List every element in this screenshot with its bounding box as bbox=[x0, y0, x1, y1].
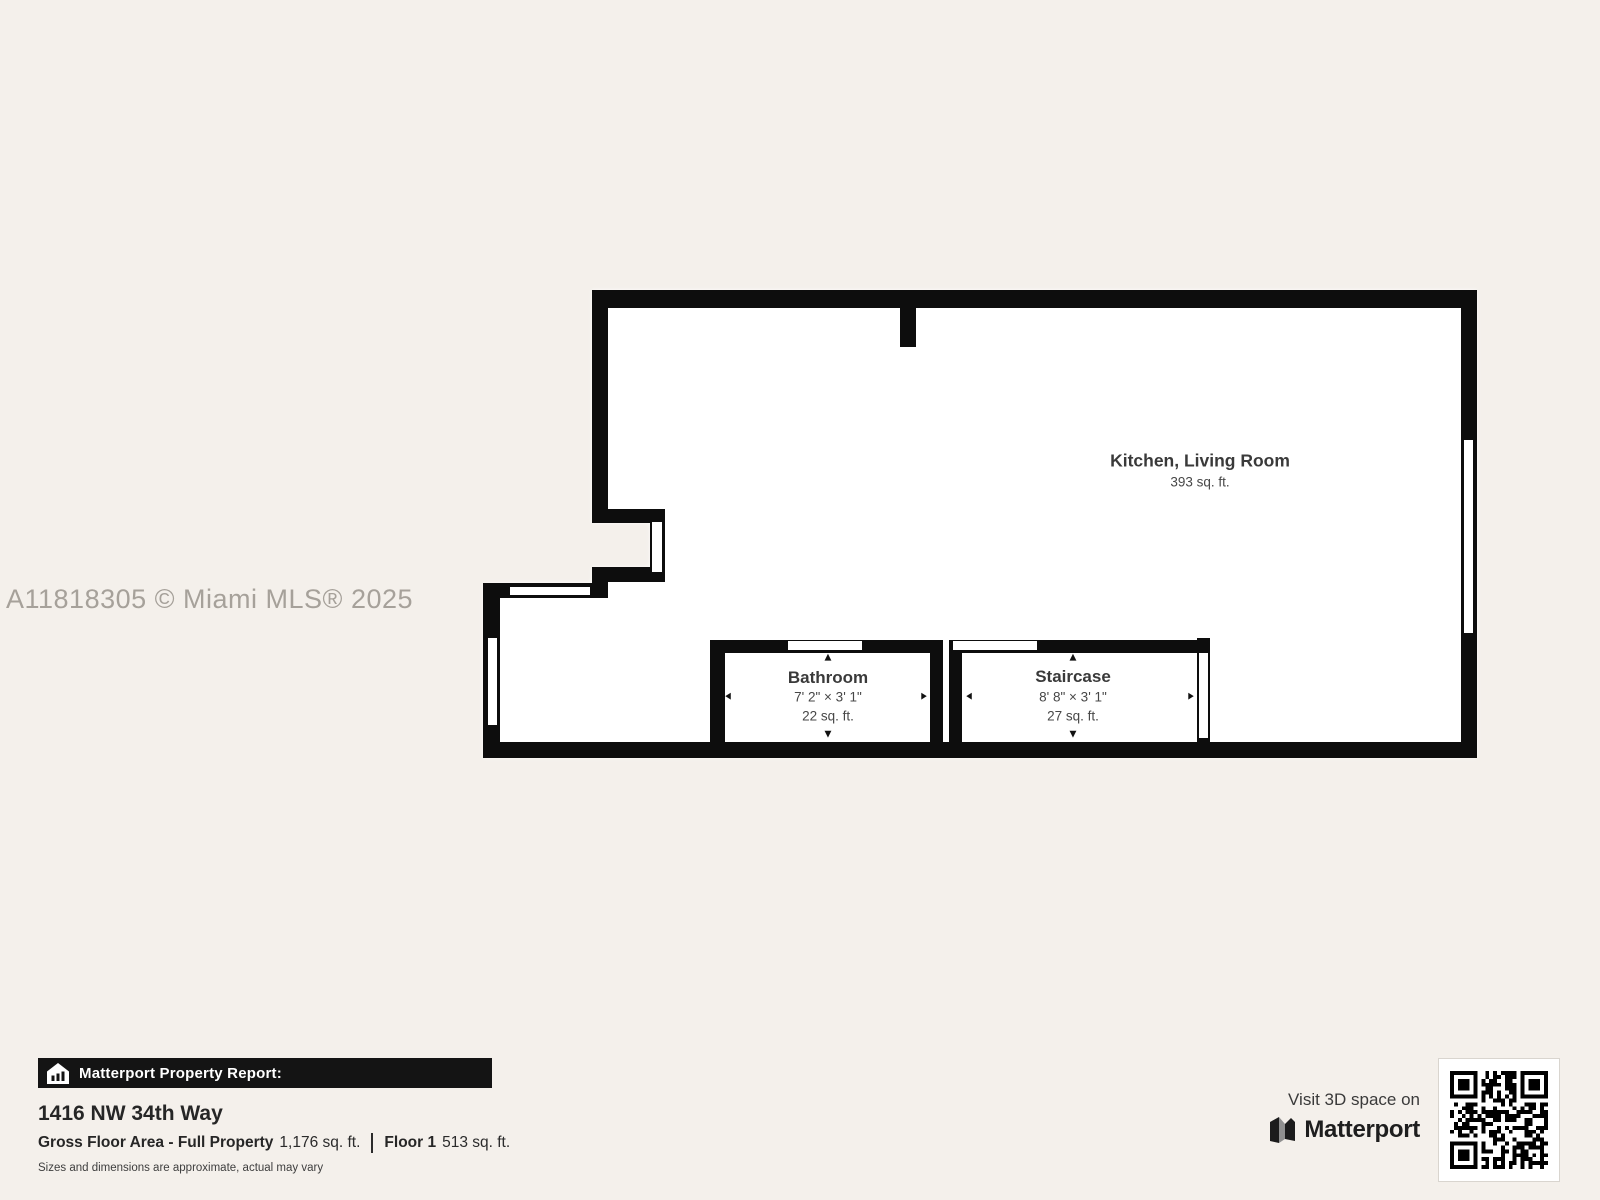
matterport-logo: Matterport bbox=[1268, 1115, 1420, 1145]
mls-watermark: A11818305 © Miami MLS® 2025 bbox=[6, 584, 413, 615]
dimension-arrow-right-icon: ▶ bbox=[921, 693, 927, 702]
visit-3d-space-cta: Visit 3D space on Matterport bbox=[1268, 1090, 1420, 1145]
room-area-kitchen-living-room: 393 sq. ft. bbox=[1170, 475, 1229, 490]
floor-plan: Kitchen, Living Room 393 sq. ft. Bathroo… bbox=[483, 290, 1477, 758]
dimension-arrow-up-icon: ▲ bbox=[825, 654, 832, 663]
disclaimer-text: Sizes and dimensions are approximate, ac… bbox=[38, 1162, 323, 1174]
floor-plan-drawing bbox=[483, 290, 1477, 758]
room-label-bathroom: Bathroom bbox=[788, 668, 868, 688]
floor-interior bbox=[500, 308, 1461, 742]
dimension-arrow-left-icon: ◀ bbox=[966, 693, 972, 702]
floor1-label: Floor 1 bbox=[384, 1134, 436, 1152]
room-area-bathroom: 22 sq. ft. bbox=[802, 709, 854, 724]
room-area-staircase: 27 sq. ft. bbox=[1047, 709, 1099, 724]
matterport-wordmark: Matterport bbox=[1304, 1116, 1420, 1144]
house-icon bbox=[47, 1063, 69, 1084]
room-dimensions-staircase: 8' 8" × 3' 1" bbox=[1039, 690, 1107, 705]
dimension-arrow-up-icon: ▲ bbox=[1070, 654, 1077, 663]
matterport-logo-icon bbox=[1268, 1115, 1296, 1145]
floor1-value: 513 sq. ft. bbox=[442, 1134, 510, 1152]
qr-code-svg bbox=[1450, 1071, 1548, 1169]
floor-area-summary: Gross Floor Area - Full Property 1,176 s… bbox=[38, 1133, 510, 1153]
dimension-arrow-left-icon: ◀ bbox=[725, 693, 731, 702]
room-label-staircase: Staircase bbox=[1035, 667, 1111, 687]
dimension-arrow-down-icon: ▼ bbox=[1070, 731, 1077, 740]
gross-floor-area-label: Gross Floor Area - Full Property bbox=[38, 1134, 273, 1152]
dimension-arrow-right-icon: ▶ bbox=[1188, 693, 1194, 702]
property-address: 1416 NW 34th Way bbox=[38, 1102, 223, 1126]
room-dimensions-bathroom: 7' 2" × 3' 1" bbox=[794, 690, 862, 705]
divider bbox=[371, 1133, 373, 1153]
dimension-arrow-down-icon: ▼ bbox=[825, 731, 832, 740]
room-label-kitchen-living-room: Kitchen, Living Room bbox=[1110, 451, 1290, 472]
gross-floor-area-value: 1,176 sq. ft. bbox=[279, 1134, 360, 1152]
report-header-bar: Matterport Property Report: bbox=[38, 1058, 492, 1088]
report-header-label: Matterport Property Report: bbox=[79, 1065, 282, 1082]
visit-3d-space-label: Visit 3D space on bbox=[1288, 1090, 1420, 1110]
qr-code bbox=[1438, 1058, 1560, 1182]
